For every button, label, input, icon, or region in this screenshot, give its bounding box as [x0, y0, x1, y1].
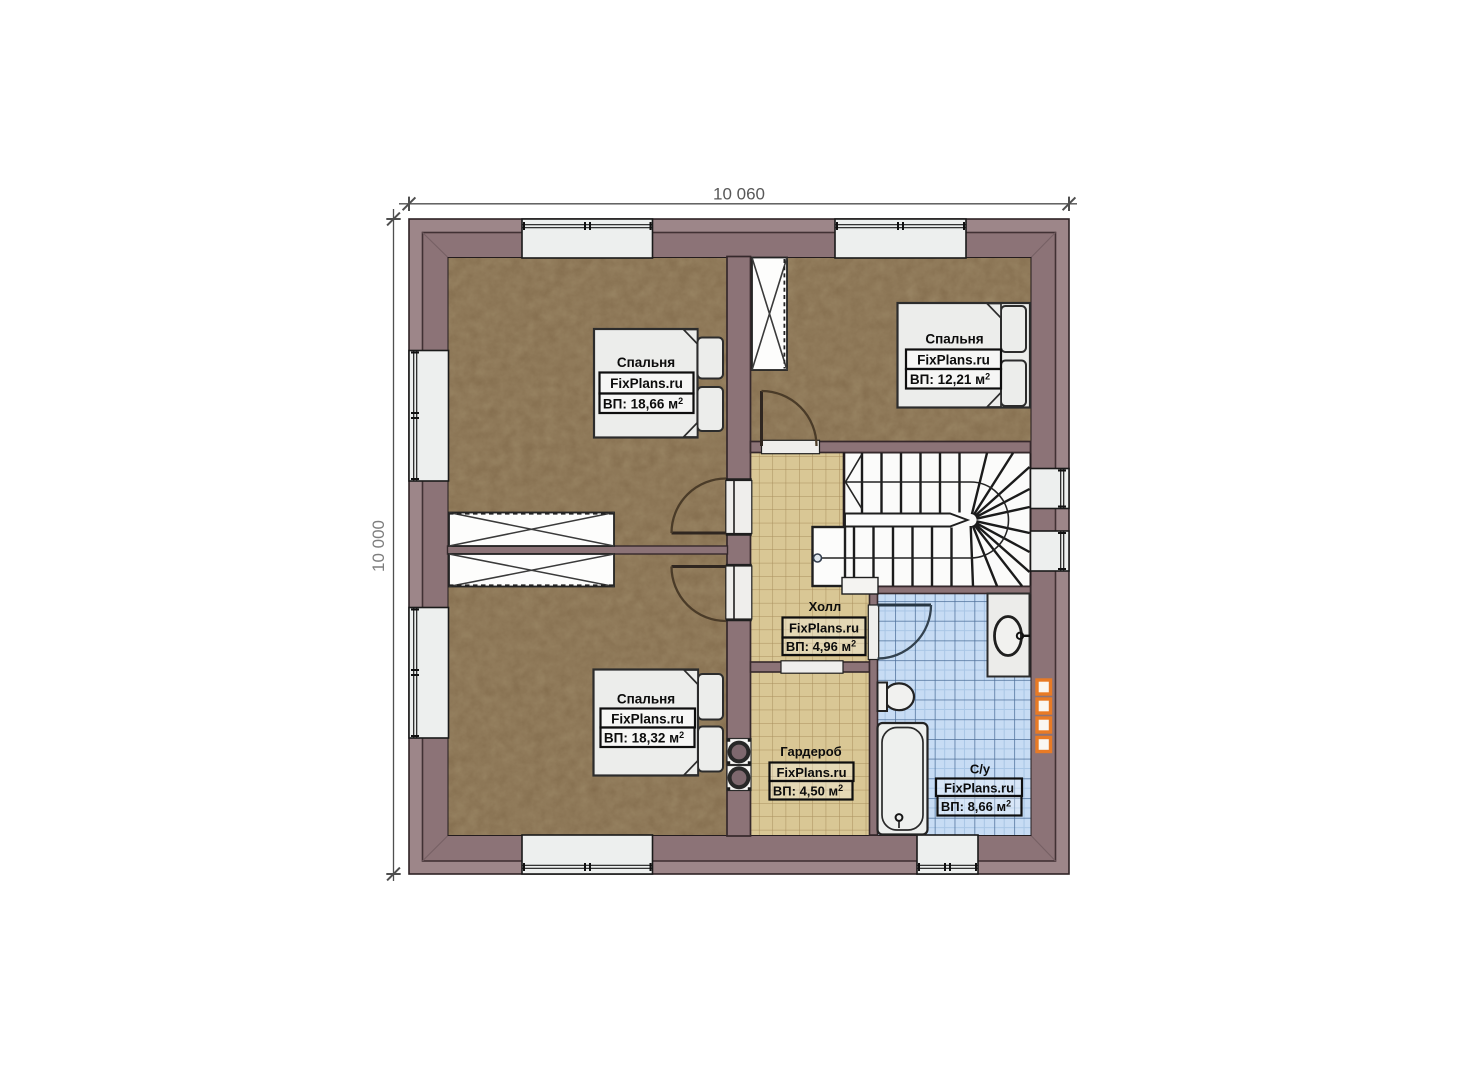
svg-text:FixPlans.ru: FixPlans.ru	[776, 765, 846, 780]
svg-text:FixPlans.ru: FixPlans.ru	[917, 353, 990, 368]
svg-text:ВП: 4,96 м2: ВП: 4,96 м2	[786, 639, 856, 655]
svg-text:ВП: 8,66 м2: ВП: 8,66 м2	[941, 799, 1011, 815]
svg-text:ВП: 18,66 м2: ВП: 18,66 м2	[603, 396, 683, 412]
svg-text:С/у: С/у	[970, 762, 991, 777]
svg-text:ВП: 18,32 м2: ВП: 18,32 м2	[604, 730, 684, 746]
svg-text:Спальня: Спальня	[617, 692, 675, 707]
svg-text:FixPlans.ru: FixPlans.ru	[611, 712, 684, 727]
svg-text:FixPlans.ru: FixPlans.ru	[610, 376, 683, 391]
svg-text:Спальня: Спальня	[617, 355, 675, 370]
svg-text:ВП: 4,50 м2: ВП: 4,50 м2	[773, 783, 843, 799]
svg-text:FixPlans.ru: FixPlans.ru	[789, 621, 859, 636]
svg-text:Гардероб: Гардероб	[780, 744, 841, 759]
svg-text:10 060: 10 060	[713, 185, 765, 204]
svg-text:Спальня: Спальня	[925, 332, 983, 347]
svg-text:Холл: Холл	[809, 599, 842, 614]
svg-text:FixPlans.ru: FixPlans.ru	[944, 781, 1014, 796]
svg-text:ВП: 12,21 м2: ВП: 12,21 м2	[910, 372, 990, 388]
svg-text:10 000: 10 000	[369, 520, 388, 572]
